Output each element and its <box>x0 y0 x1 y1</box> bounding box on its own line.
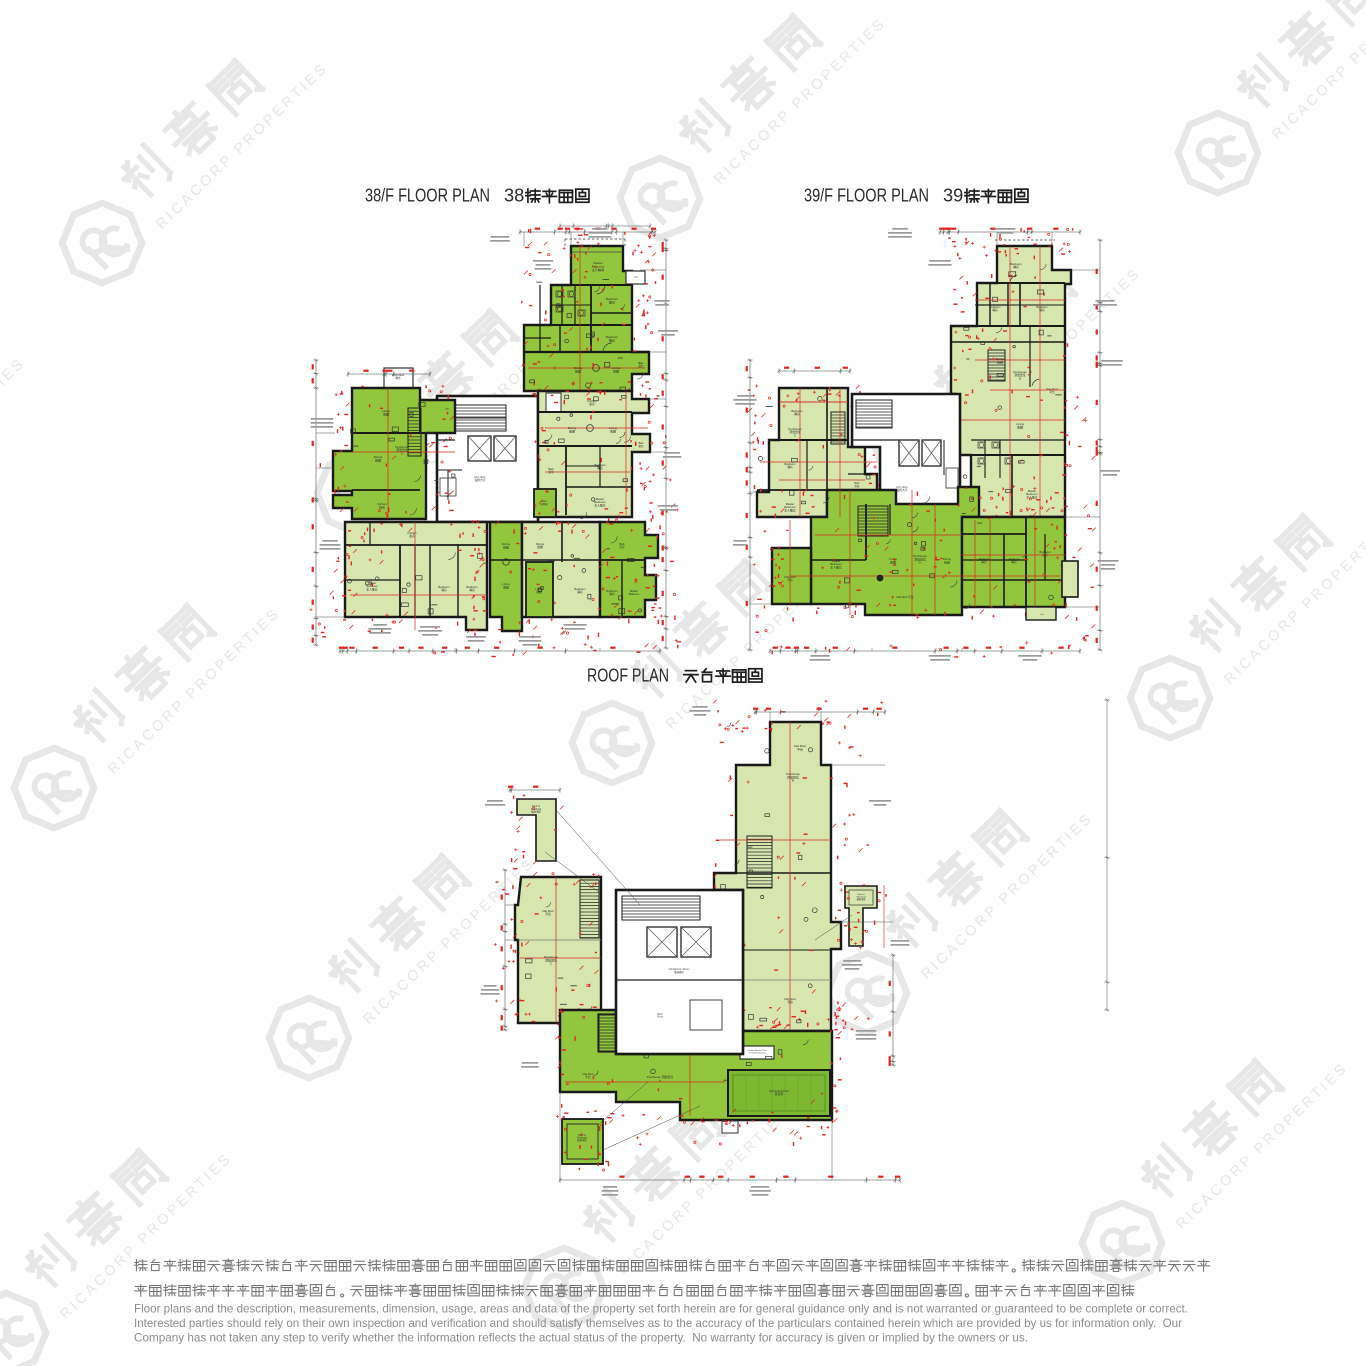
svg-text:Outside Metal w/ Partfor Swimm: Outside Metal w/ Partfor Swimming Pool <box>747 1049 767 1054</box>
svg-text:Lift: Lift <box>634 276 638 279</box>
svg-text:Bath浴室: Bath浴室 <box>619 542 625 549</box>
svg-text:Lift Lobby電梯大堂: Lift Lobby電梯大堂 <box>896 485 908 492</box>
svg-text:Flat Roof 平台: Flat Roof 平台 <box>896 595 913 599</box>
svg-text:ROOF PLAN: ROOF PLAN <box>587 666 669 686</box>
svg-text:38: 38 <box>504 186 524 206</box>
svg-text:Lift Lobby電梯大堂: Lift Lobby電梯大堂 <box>474 475 486 482</box>
svg-text:Bath浴室: Bath浴室 <box>548 467 554 474</box>
svg-text:Balc露台: Balc露台 <box>638 442 644 448</box>
svg-text:39/F FLOOR PLAN: 39/F FLOOR PLAN <box>804 186 929 206</box>
svg-text:Floor plans and the descriptio: Floor plans and the description, measure… <box>134 1303 1188 1316</box>
svg-text:Company has not taken any step: Company has not taken any step to verify… <box>134 1332 1028 1345</box>
svg-text:Balc露台: Balc露台 <box>638 361 644 368</box>
svg-text:Interested parties should rely: Interested parties should rely on their … <box>134 1317 1182 1330</box>
svg-text:Bath: Bath <box>978 522 984 525</box>
svg-text:38/F FLOOR PLAN: 38/F FLOOR PLAN <box>365 186 490 206</box>
svg-text:WaterPump: WaterPump <box>657 1013 664 1019</box>
svg-text:MasterBedroom: MasterBedroom <box>629 589 640 596</box>
svg-text:HR: HR <box>445 408 449 411</box>
svg-text:Lift: Lift <box>1041 613 1044 616</box>
svg-text:Bath浴室: Bath浴室 <box>854 482 860 488</box>
svg-text:39: 39 <box>943 186 963 206</box>
